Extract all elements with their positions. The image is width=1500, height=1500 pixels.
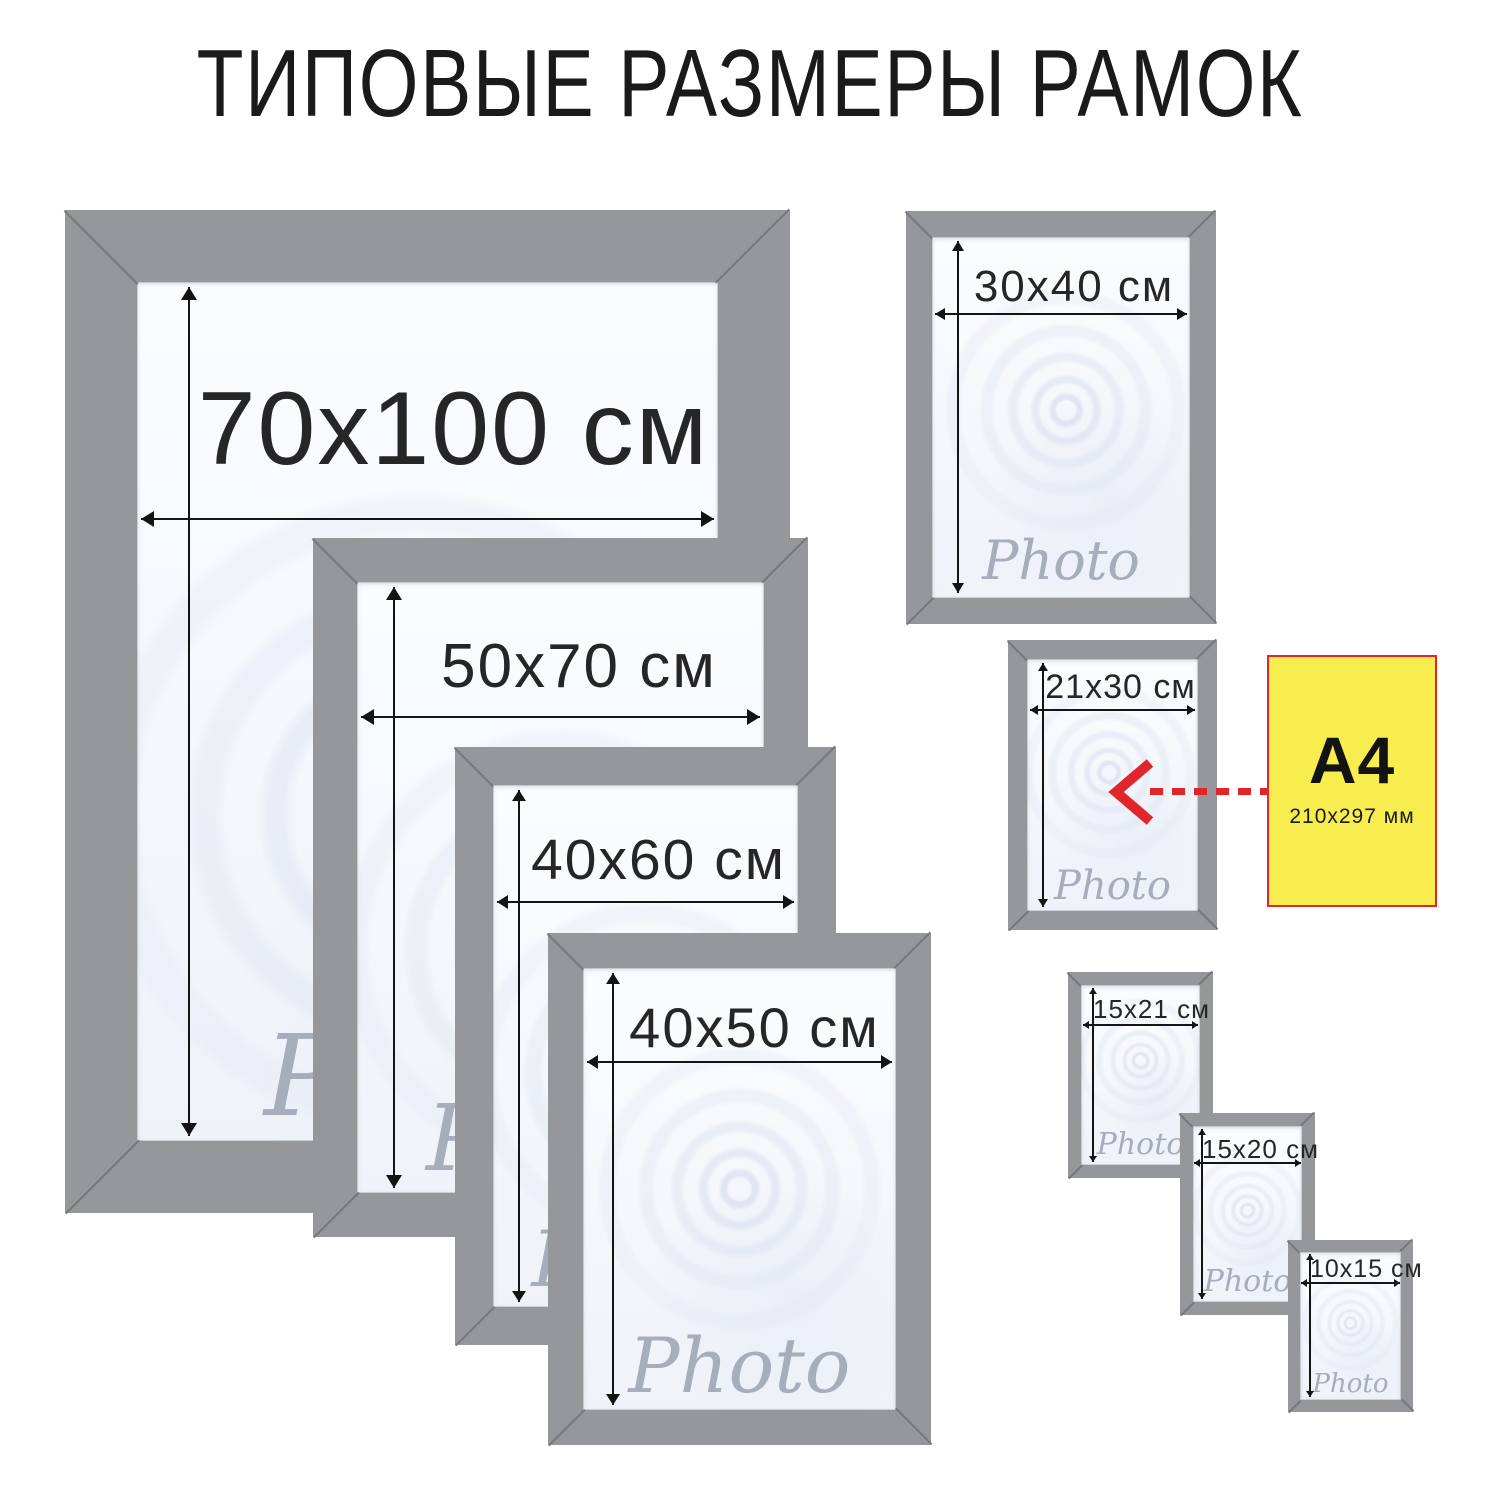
- miter-line: [1300, 1112, 1315, 1127]
- miter-line: [796, 746, 836, 786]
- photo-watermark: Photo: [932, 534, 1190, 588]
- miter-line: [1179, 1113, 1194, 1128]
- photo-watermark: Photo: [583, 1328, 896, 1404]
- height-dimension-arrow: [1042, 663, 1044, 907]
- miter-line: [313, 1192, 360, 1239]
- size-label: 15x21 см: [1093, 996, 1200, 1022]
- miter-line: [455, 1306, 495, 1346]
- miter-line: [454, 747, 494, 787]
- photo-watermark: Photo: [1193, 1267, 1302, 1297]
- miter-line: [894, 932, 931, 969]
- miter-line: [1288, 1400, 1302, 1414]
- page-title: ТИПОВЫЕ РАЗМЕРЫ РАМОК: [150, 34, 1350, 135]
- height-dimension-arrow: [612, 973, 614, 1405]
- size-label: 30x40 см: [958, 265, 1190, 309]
- miter-line: [65, 1139, 140, 1214]
- miter-line: [1189, 596, 1217, 624]
- miter-line: [905, 211, 933, 239]
- size-label: 21x30 см: [1043, 670, 1198, 704]
- miter-line: [1399, 1239, 1413, 1253]
- height-dimension-arrow: [393, 587, 395, 1188]
- height-dimension-arrow: [1092, 988, 1094, 1162]
- miter-line: [1287, 1240, 1301, 1254]
- a4-reference-card: A4 210x297 мм: [1267, 655, 1437, 907]
- height-dimension-arrow: [1201, 1129, 1203, 1299]
- miter-line: [1180, 1302, 1195, 1317]
- width-dimension-arrow: [497, 901, 794, 903]
- a4-dimensions: 210x297 мм: [1269, 805, 1435, 829]
- miter-line: [312, 538, 359, 585]
- miter-line: [906, 597, 934, 625]
- miter-line: [1198, 971, 1213, 986]
- width-dimension-arrow: [1301, 1282, 1400, 1284]
- miter-line: [1401, 1398, 1415, 1412]
- red-dashed-line: [1150, 788, 1267, 795]
- frame-30x40: Photo 30x40 см: [906, 211, 1216, 624]
- frame-40x50: Photo 40x50 см: [548, 933, 931, 1445]
- miter-line: [1008, 911, 1029, 932]
- frame-sizes-infographic: ТИПОВЫЕ РАЗМЕРЫ РАМОК Photo 70x100 см Ph…: [0, 0, 1500, 1500]
- miter-line: [1068, 1165, 1083, 1180]
- miter-line: [547, 933, 584, 970]
- size-label: 70x100 см: [189, 377, 718, 481]
- width-dimension-arrow: [1194, 1162, 1301, 1164]
- size-label: 50x70 см: [394, 636, 764, 698]
- a4-label: A4: [1269, 727, 1435, 793]
- width-dimension-arrow: [1030, 709, 1195, 711]
- size-label: 40x60 см: [519, 832, 798, 889]
- frame-10x15: Photo 10x15 см: [1288, 1240, 1413, 1412]
- height-dimension-arrow: [1309, 1254, 1311, 1397]
- miter-line: [1198, 909, 1219, 930]
- miter-line: [1067, 972, 1082, 987]
- width-dimension-arrow: [935, 313, 1187, 315]
- height-dimension-arrow: [957, 241, 959, 593]
- width-dimension-arrow: [141, 518, 714, 520]
- miter-line: [895, 1408, 932, 1445]
- size-label: 10x15 см: [1310, 1257, 1401, 1282]
- size-label: 15x20 см: [1202, 1136, 1302, 1162]
- photo-watermark: Photo: [1027, 866, 1198, 906]
- miter-line: [64, 210, 139, 285]
- width-dimension-arrow: [587, 1061, 892, 1063]
- height-dimension-arrow: [188, 287, 190, 1136]
- miter-line: [548, 1409, 585, 1446]
- miter-line: [761, 537, 808, 584]
- miter-line: [1196, 639, 1217, 660]
- miter-line: [1007, 640, 1028, 661]
- miter-line: [715, 209, 790, 284]
- miter-line: [1188, 210, 1216, 238]
- photo-watermark: Photo: [1300, 1371, 1401, 1397]
- width-dimension-arrow: [361, 716, 760, 718]
- height-dimension-arrow: [518, 790, 520, 1302]
- width-dimension-arrow: [1083, 1024, 1198, 1026]
- red-arrowhead-icon: [1106, 757, 1162, 827]
- size-label: 40x50 см: [613, 1000, 896, 1056]
